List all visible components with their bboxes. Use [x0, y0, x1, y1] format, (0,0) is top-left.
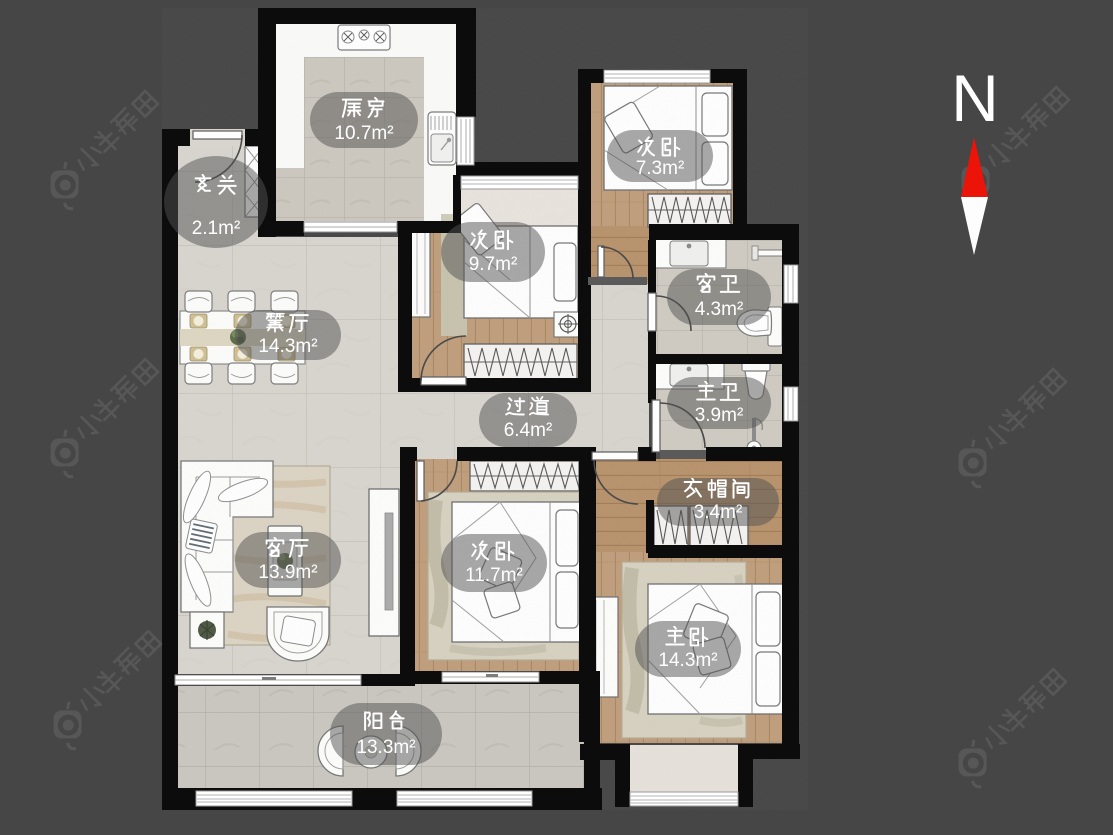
svg-text:9.7m²: 9.7m² — [469, 254, 518, 275]
svg-text:13.9m²: 13.9m² — [258, 562, 317, 583]
svg-text:10.7m²: 10.7m² — [334, 123, 393, 144]
svg-text:2.1m²: 2.1m² — [192, 218, 241, 239]
svg-text:14.3m²: 14.3m² — [658, 650, 717, 671]
svg-text:3.9m²: 3.9m² — [695, 405, 744, 426]
svg-text:6.4m²: 6.4m² — [504, 420, 553, 441]
svg-text:7.3m²: 7.3m² — [636, 158, 685, 179]
svg-text:14.3m²: 14.3m² — [258, 336, 317, 357]
svg-text:N: N — [951, 61, 999, 135]
svg-text:11.7m²: 11.7m² — [465, 565, 523, 586]
svg-text:4.3m²: 4.3m² — [695, 299, 744, 320]
svg-text:13.3m²: 13.3m² — [356, 737, 415, 758]
svg-text:3.4m²: 3.4m² — [694, 502, 743, 523]
